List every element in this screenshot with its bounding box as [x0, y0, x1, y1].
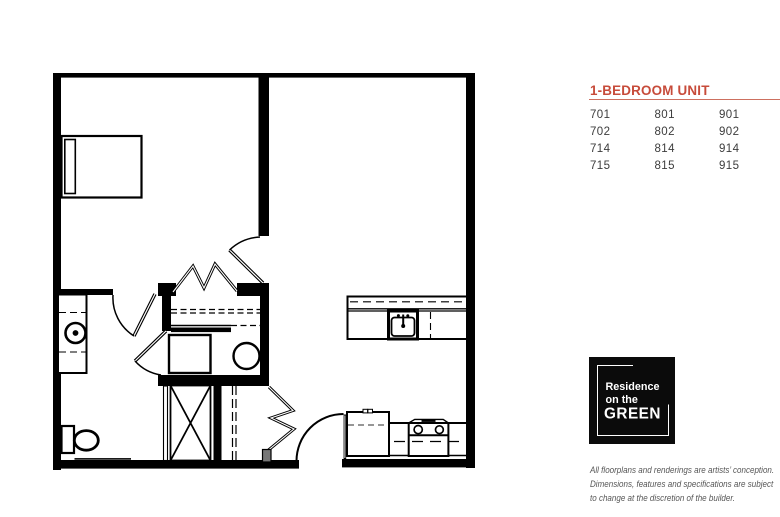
svg-text:Residence: Residence: [606, 381, 660, 393]
svg-text:on the: on the: [606, 394, 638, 406]
svg-text:GREEN: GREEN: [604, 406, 661, 423]
